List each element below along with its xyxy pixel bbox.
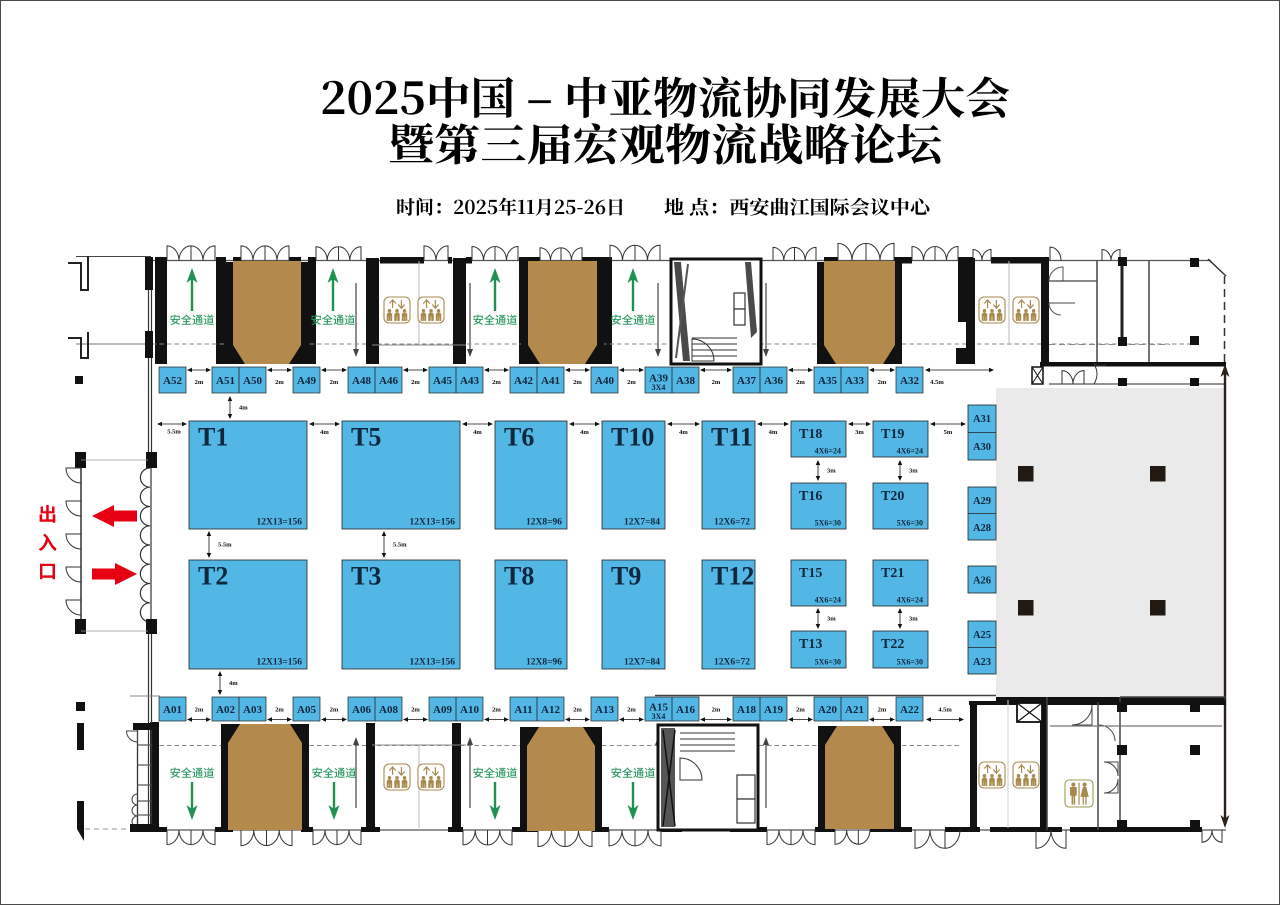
svg-text:2m: 2m <box>492 707 501 714</box>
svg-text:2m: 2m <box>275 379 284 386</box>
svg-text:12X13=156: 12X13=156 <box>256 658 302 668</box>
svg-text:12X7=84: 12X7=84 <box>624 518 660 528</box>
svg-text:4X6=24: 4X6=24 <box>897 596 923 605</box>
svg-text:A48: A48 <box>352 375 371 387</box>
svg-text:2m: 2m <box>573 707 582 714</box>
svg-text:4X6=24: 4X6=24 <box>897 447 923 456</box>
svg-text:5X6=30: 5X6=30 <box>897 519 923 528</box>
svg-text:A25: A25 <box>973 630 991 641</box>
svg-text:12X13=156: 12X13=156 <box>409 658 455 668</box>
svg-text:A09: A09 <box>433 704 452 716</box>
svg-text:4X6=24: 4X6=24 <box>815 447 841 456</box>
svg-text:2m: 2m <box>275 707 284 714</box>
svg-text:A40: A40 <box>595 375 614 387</box>
svg-text:2m: 2m <box>712 379 721 386</box>
svg-text:A20: A20 <box>818 704 837 716</box>
svg-text:T19: T19 <box>881 427 904 442</box>
svg-text:A43: A43 <box>460 375 479 387</box>
svg-text:12X8=96: 12X8=96 <box>526 518 562 528</box>
svg-text:3m: 3m <box>855 429 864 436</box>
svg-text:2m: 2m <box>330 379 339 386</box>
svg-text:A29: A29 <box>973 496 991 507</box>
svg-text:A05: A05 <box>297 704 316 716</box>
svg-text:A36: A36 <box>764 375 783 387</box>
svg-text:2m: 2m <box>411 379 420 386</box>
svg-text:3X4: 3X4 <box>652 383 666 392</box>
svg-text:A16: A16 <box>676 704 695 716</box>
svg-text:T15: T15 <box>799 566 822 581</box>
svg-text:A41: A41 <box>541 375 560 387</box>
svg-text:A26: A26 <box>973 576 991 587</box>
svg-text:3m: 3m <box>909 468 918 475</box>
svg-text:T16: T16 <box>799 489 822 504</box>
svg-text:A06: A06 <box>352 704 371 716</box>
svg-text:T8: T8 <box>504 562 534 591</box>
svg-text:12X13=156: 12X13=156 <box>409 518 455 528</box>
svg-text:4m: 4m <box>580 429 589 436</box>
svg-text:T9: T9 <box>611 562 641 591</box>
svg-text:A01: A01 <box>163 704 182 716</box>
svg-text:A11: A11 <box>514 704 532 716</box>
svg-text:A23: A23 <box>973 657 991 668</box>
svg-text:2m: 2m <box>712 707 721 714</box>
svg-text:12X6=72: 12X6=72 <box>714 518 750 528</box>
svg-text:A33: A33 <box>845 375 864 387</box>
svg-text:2m: 2m <box>627 707 636 714</box>
svg-text:A52: A52 <box>163 375 182 387</box>
svg-text:4m: 4m <box>239 405 248 412</box>
svg-text:2m: 2m <box>796 379 805 386</box>
svg-text:2m: 2m <box>573 379 582 386</box>
svg-text:A31: A31 <box>973 414 991 425</box>
svg-text:4m: 4m <box>320 429 329 436</box>
svg-text:A08: A08 <box>379 704 398 716</box>
svg-text:T5: T5 <box>351 423 381 452</box>
svg-text:T12: T12 <box>711 562 754 591</box>
svg-text:5X6=30: 5X6=30 <box>897 658 923 667</box>
svg-text:4.5m: 4.5m <box>938 707 952 714</box>
svg-text:T22: T22 <box>881 637 904 652</box>
svg-text:3X4: 3X4 <box>652 712 666 721</box>
svg-text:4m: 4m <box>769 429 778 436</box>
svg-text:4m: 4m <box>229 680 238 687</box>
svg-text:A45: A45 <box>433 375 452 387</box>
svg-text:12X6=72: 12X6=72 <box>714 658 750 668</box>
svg-text:3m: 3m <box>827 468 836 475</box>
svg-text:2m: 2m <box>878 707 887 714</box>
svg-text:T6: T6 <box>504 423 534 452</box>
svg-text:T2: T2 <box>198 562 228 591</box>
svg-text:A50: A50 <box>243 375 262 387</box>
svg-text:A42: A42 <box>514 375 533 387</box>
svg-text:T18: T18 <box>799 427 822 442</box>
svg-text:4m: 4m <box>679 429 688 436</box>
svg-text:T13: T13 <box>799 637 822 652</box>
svg-text:A18: A18 <box>737 704 756 716</box>
svg-text:A22: A22 <box>900 704 919 716</box>
svg-text:T21: T21 <box>881 566 904 581</box>
svg-text:4X6=24: 4X6=24 <box>815 596 841 605</box>
svg-text:5X6=30: 5X6=30 <box>815 519 841 528</box>
svg-text:A12: A12 <box>541 704 560 716</box>
svg-text:5.5m: 5.5m <box>218 542 232 549</box>
svg-text:5X6=30: 5X6=30 <box>815 658 841 667</box>
svg-text:A21: A21 <box>845 704 864 716</box>
svg-text:A46: A46 <box>379 375 398 387</box>
svg-text:2m: 2m <box>195 379 204 386</box>
svg-text:2m: 2m <box>627 379 636 386</box>
svg-text:A19: A19 <box>764 704 783 716</box>
svg-text:A28: A28 <box>973 523 991 534</box>
svg-text:T1: T1 <box>198 423 228 452</box>
svg-text:2m: 2m <box>878 379 887 386</box>
svg-text:A10: A10 <box>460 704 479 716</box>
svg-text:2m: 2m <box>195 707 204 714</box>
svg-text:4m: 4m <box>473 429 482 436</box>
svg-text:A35: A35 <box>818 375 837 387</box>
svg-text:5m: 5m <box>944 429 953 436</box>
svg-text:T3: T3 <box>351 562 381 591</box>
svg-text:T11: T11 <box>711 423 753 452</box>
svg-text:5.5m: 5.5m <box>167 429 181 436</box>
svg-text:4.5m: 4.5m <box>930 379 944 386</box>
svg-text:T10: T10 <box>611 423 654 452</box>
svg-text:A32: A32 <box>900 375 919 387</box>
svg-text:A38: A38 <box>676 375 695 387</box>
svg-text:2m: 2m <box>330 707 339 714</box>
svg-text:A37: A37 <box>737 375 756 387</box>
svg-text:12X8=96: 12X8=96 <box>526 658 562 668</box>
svg-text:12X7=84: 12X7=84 <box>624 658 660 668</box>
svg-text:A49: A49 <box>297 375 316 387</box>
svg-text:A02: A02 <box>216 704 235 716</box>
svg-text:A13: A13 <box>595 704 614 716</box>
svg-text:2m: 2m <box>492 379 501 386</box>
svg-text:12X13=156: 12X13=156 <box>256 518 302 528</box>
svg-text:3m: 3m <box>827 616 836 623</box>
svg-text:2m: 2m <box>411 707 420 714</box>
svg-text:T20: T20 <box>881 489 904 504</box>
svg-text:A30: A30 <box>973 442 991 453</box>
svg-text:3m: 3m <box>909 616 918 623</box>
svg-text:A51: A51 <box>216 375 235 387</box>
svg-text:2m: 2m <box>796 707 805 714</box>
svg-text:5.5m: 5.5m <box>393 542 407 549</box>
svg-text:A03: A03 <box>243 704 262 716</box>
